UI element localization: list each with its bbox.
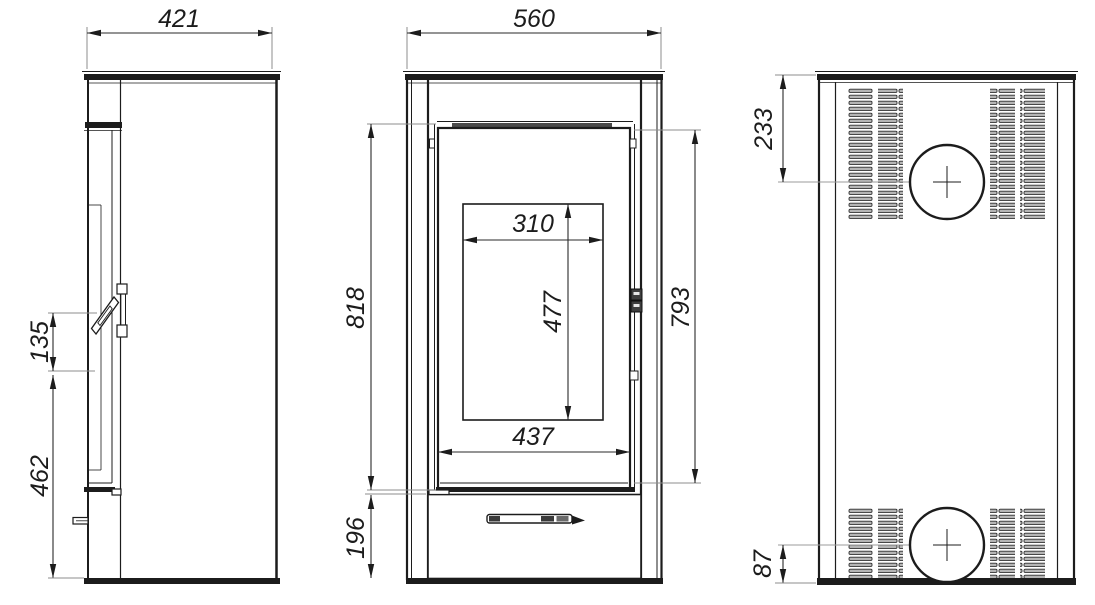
back-view: 233 87: [749, 72, 1078, 586]
door-hinge-top: [430, 139, 435, 148]
side-view: 421 135 462: [26, 5, 281, 584]
dim-door-frame-height-label: 818: [342, 287, 370, 329]
dim-handle-floor-label: 462: [26, 455, 54, 497]
side-body-outline: [84, 80, 280, 584]
technical-drawing: 421 135 462: [0, 0, 1095, 605]
dim-depth-label: 421: [158, 5, 200, 33]
door-hinge-bottom: [630, 371, 638, 380]
side-door-handle: [92, 284, 128, 337]
dim-door-width-label: 437: [512, 423, 555, 451]
dim-door-leaf-height-label: 793: [667, 287, 695, 329]
dim-pedestal-height-label: 196: [342, 517, 370, 559]
dim-glass-width-label: 310: [512, 210, 554, 238]
front-view: 560 818 793 310 477 437 196: [342, 5, 701, 584]
front-top-plate: [403, 72, 665, 81]
side-top-plate: [82, 72, 281, 81]
back-top-plate: [815, 72, 1078, 81]
dim-flue-bottom-label: 87: [749, 549, 777, 578]
door-hinge-mark: [630, 139, 636, 148]
door-lock: [631, 289, 642, 312]
side-dimensions: 421 135 462: [26, 5, 272, 578]
dim-flue-top-label: 233: [750, 108, 778, 151]
dim-width-label: 560: [513, 5, 555, 33]
dim-glass-height-label: 477: [539, 290, 567, 333]
back-dimensions: 233 87: [749, 75, 816, 583]
pedestal-handle: [487, 515, 585, 525]
dim-handle-length-label: 135: [26, 321, 54, 363]
side-ash-latch: [73, 518, 88, 525]
front-pedestal: [406, 490, 663, 584]
